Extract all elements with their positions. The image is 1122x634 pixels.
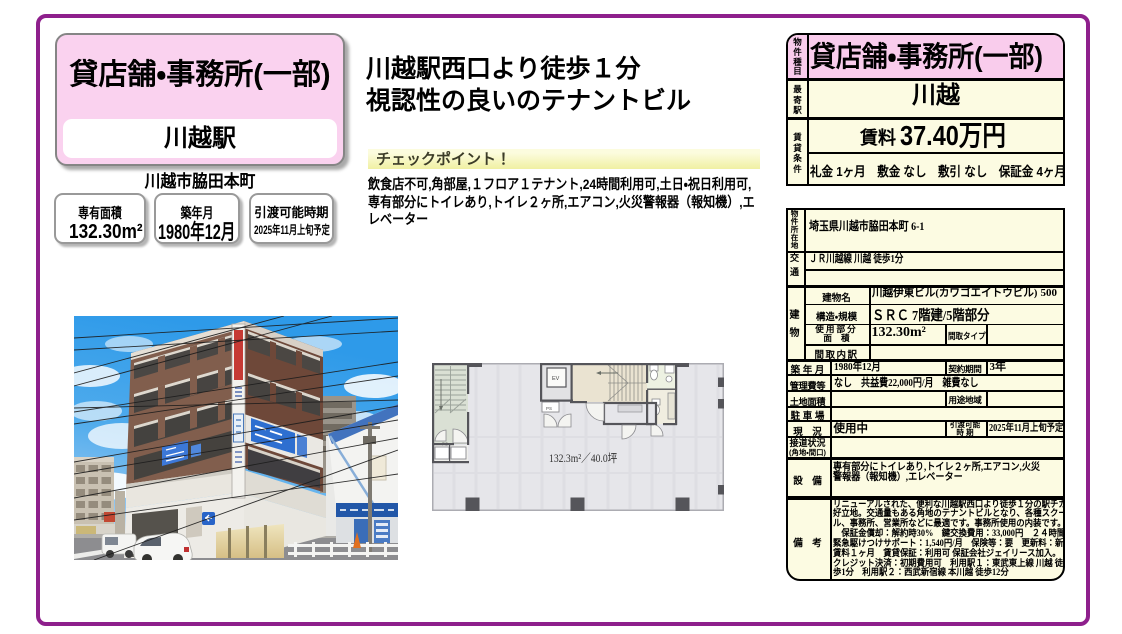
svg-text:EV: EV	[552, 376, 560, 382]
svg-text:132.3m²／40.0坪: 132.3m²／40.0坪	[549, 451, 618, 465]
svg-text:PS: PS	[546, 406, 552, 411]
